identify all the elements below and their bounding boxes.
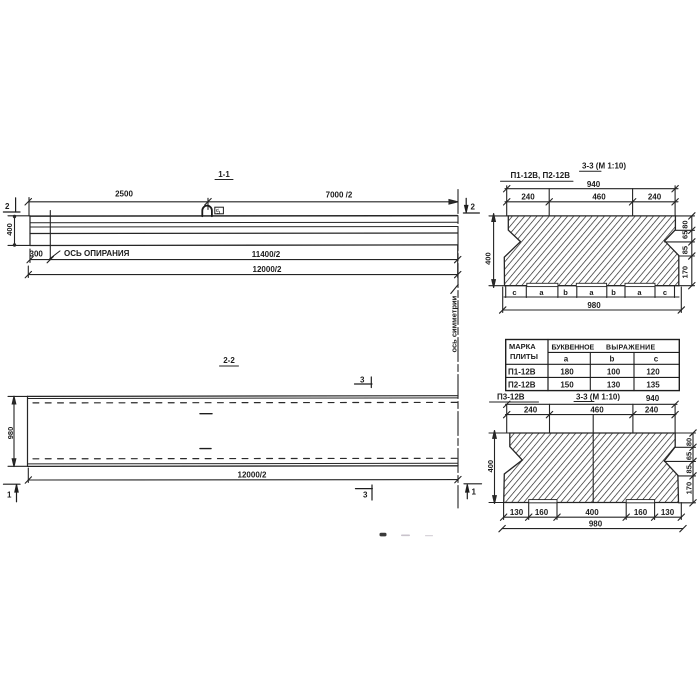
- svg-text:12000/2: 12000/2: [238, 471, 267, 480]
- svg-text:2500: 2500: [115, 190, 133, 199]
- svg-text:П2-12В: П2-12В: [508, 381, 536, 390]
- svg-text:130: 130: [607, 381, 621, 390]
- svg-text:980: 980: [589, 519, 603, 528]
- svg-text:1: 1: [472, 488, 477, 497]
- svg-text:160: 160: [634, 508, 648, 517]
- svg-text:940: 940: [587, 180, 601, 189]
- svg-text:65: 65: [685, 452, 694, 460]
- svg-text:c: c: [663, 288, 667, 297]
- svg-text:300: 300: [30, 250, 44, 259]
- svg-text:940: 940: [646, 394, 660, 403]
- svg-text:460: 460: [592, 192, 606, 201]
- svg-text:c: c: [654, 355, 659, 364]
- svg-text:11400/2: 11400/2: [252, 250, 281, 259]
- svg-text:240: 240: [524, 405, 538, 414]
- svg-text:ВЫРАЖЕНИЕ: ВЫРАЖЕНИЕ: [606, 345, 655, 352]
- svg-text:80: 80: [681, 220, 690, 228]
- svg-text:170: 170: [685, 482, 694, 495]
- svg-text:ОСЬ ОПИРАНИЯ: ОСЬ ОПИРАНИЯ: [64, 249, 130, 258]
- svg-text:980: 980: [6, 427, 15, 440]
- svg-text:240: 240: [645, 405, 659, 414]
- svg-text:3-3 (М 1:10): 3-3 (М 1:10): [576, 392, 620, 401]
- svg-text:ось симметрии: ось симметрии: [450, 295, 459, 352]
- svg-text:12000/2: 12000/2: [253, 265, 282, 274]
- svg-text:МАРКА: МАРКА: [509, 342, 536, 351]
- svg-text:2-2: 2-2: [223, 356, 235, 365]
- svg-text:П3-12В: П3-12В: [497, 393, 525, 402]
- svg-text:130: 130: [510, 508, 524, 517]
- svg-text:460: 460: [590, 405, 604, 414]
- svg-text:170: 170: [681, 266, 690, 279]
- svg-text:180: 180: [560, 368, 574, 377]
- svg-text:1: 1: [7, 491, 12, 500]
- svg-text:65: 65: [681, 231, 690, 239]
- svg-text:85: 85: [681, 246, 690, 254]
- svg-text:2: 2: [5, 202, 10, 211]
- svg-text:400: 400: [5, 223, 14, 236]
- svg-text:3: 3: [360, 376, 365, 385]
- svg-text:980: 980: [587, 301, 601, 310]
- svg-text:130: 130: [661, 508, 675, 517]
- svg-text:БУКВЕННОЕ: БУКВЕННОЕ: [552, 345, 595, 352]
- svg-text:120: 120: [646, 368, 660, 377]
- svg-text:240: 240: [648, 192, 662, 201]
- svg-text:80: 80: [685, 438, 694, 446]
- svg-text:3-3 (М 1:10): 3-3 (М 1:10): [582, 162, 626, 171]
- svg-text:a: a: [564, 355, 569, 364]
- svg-text:135: 135: [646, 381, 660, 390]
- svg-text:П1-12В: П1-12В: [508, 368, 536, 377]
- svg-text:b: b: [611, 288, 616, 297]
- svg-text:160: 160: [535, 508, 549, 517]
- svg-text:150: 150: [560, 381, 574, 390]
- svg-text:100: 100: [607, 368, 621, 377]
- svg-text:3: 3: [363, 491, 368, 500]
- svg-text:7000 /2: 7000 /2: [326, 191, 353, 200]
- svg-text:2: 2: [471, 203, 476, 212]
- svg-text:b: b: [610, 355, 615, 364]
- svg-text:b: b: [563, 288, 568, 297]
- svg-text:85: 85: [685, 465, 694, 473]
- svg-text:400: 400: [585, 508, 599, 517]
- svg-text:1-1: 1-1: [218, 170, 230, 179]
- svg-text:П1-12В, П2-12В: П1-12В, П2-12В: [511, 171, 571, 180]
- svg-text:400: 400: [486, 460, 495, 473]
- svg-text:240: 240: [521, 192, 535, 201]
- svg-text:ПЛИТЫ: ПЛИТЫ: [510, 352, 538, 361]
- svg-text:400: 400: [484, 252, 493, 265]
- svg-text:c: c: [512, 288, 516, 297]
